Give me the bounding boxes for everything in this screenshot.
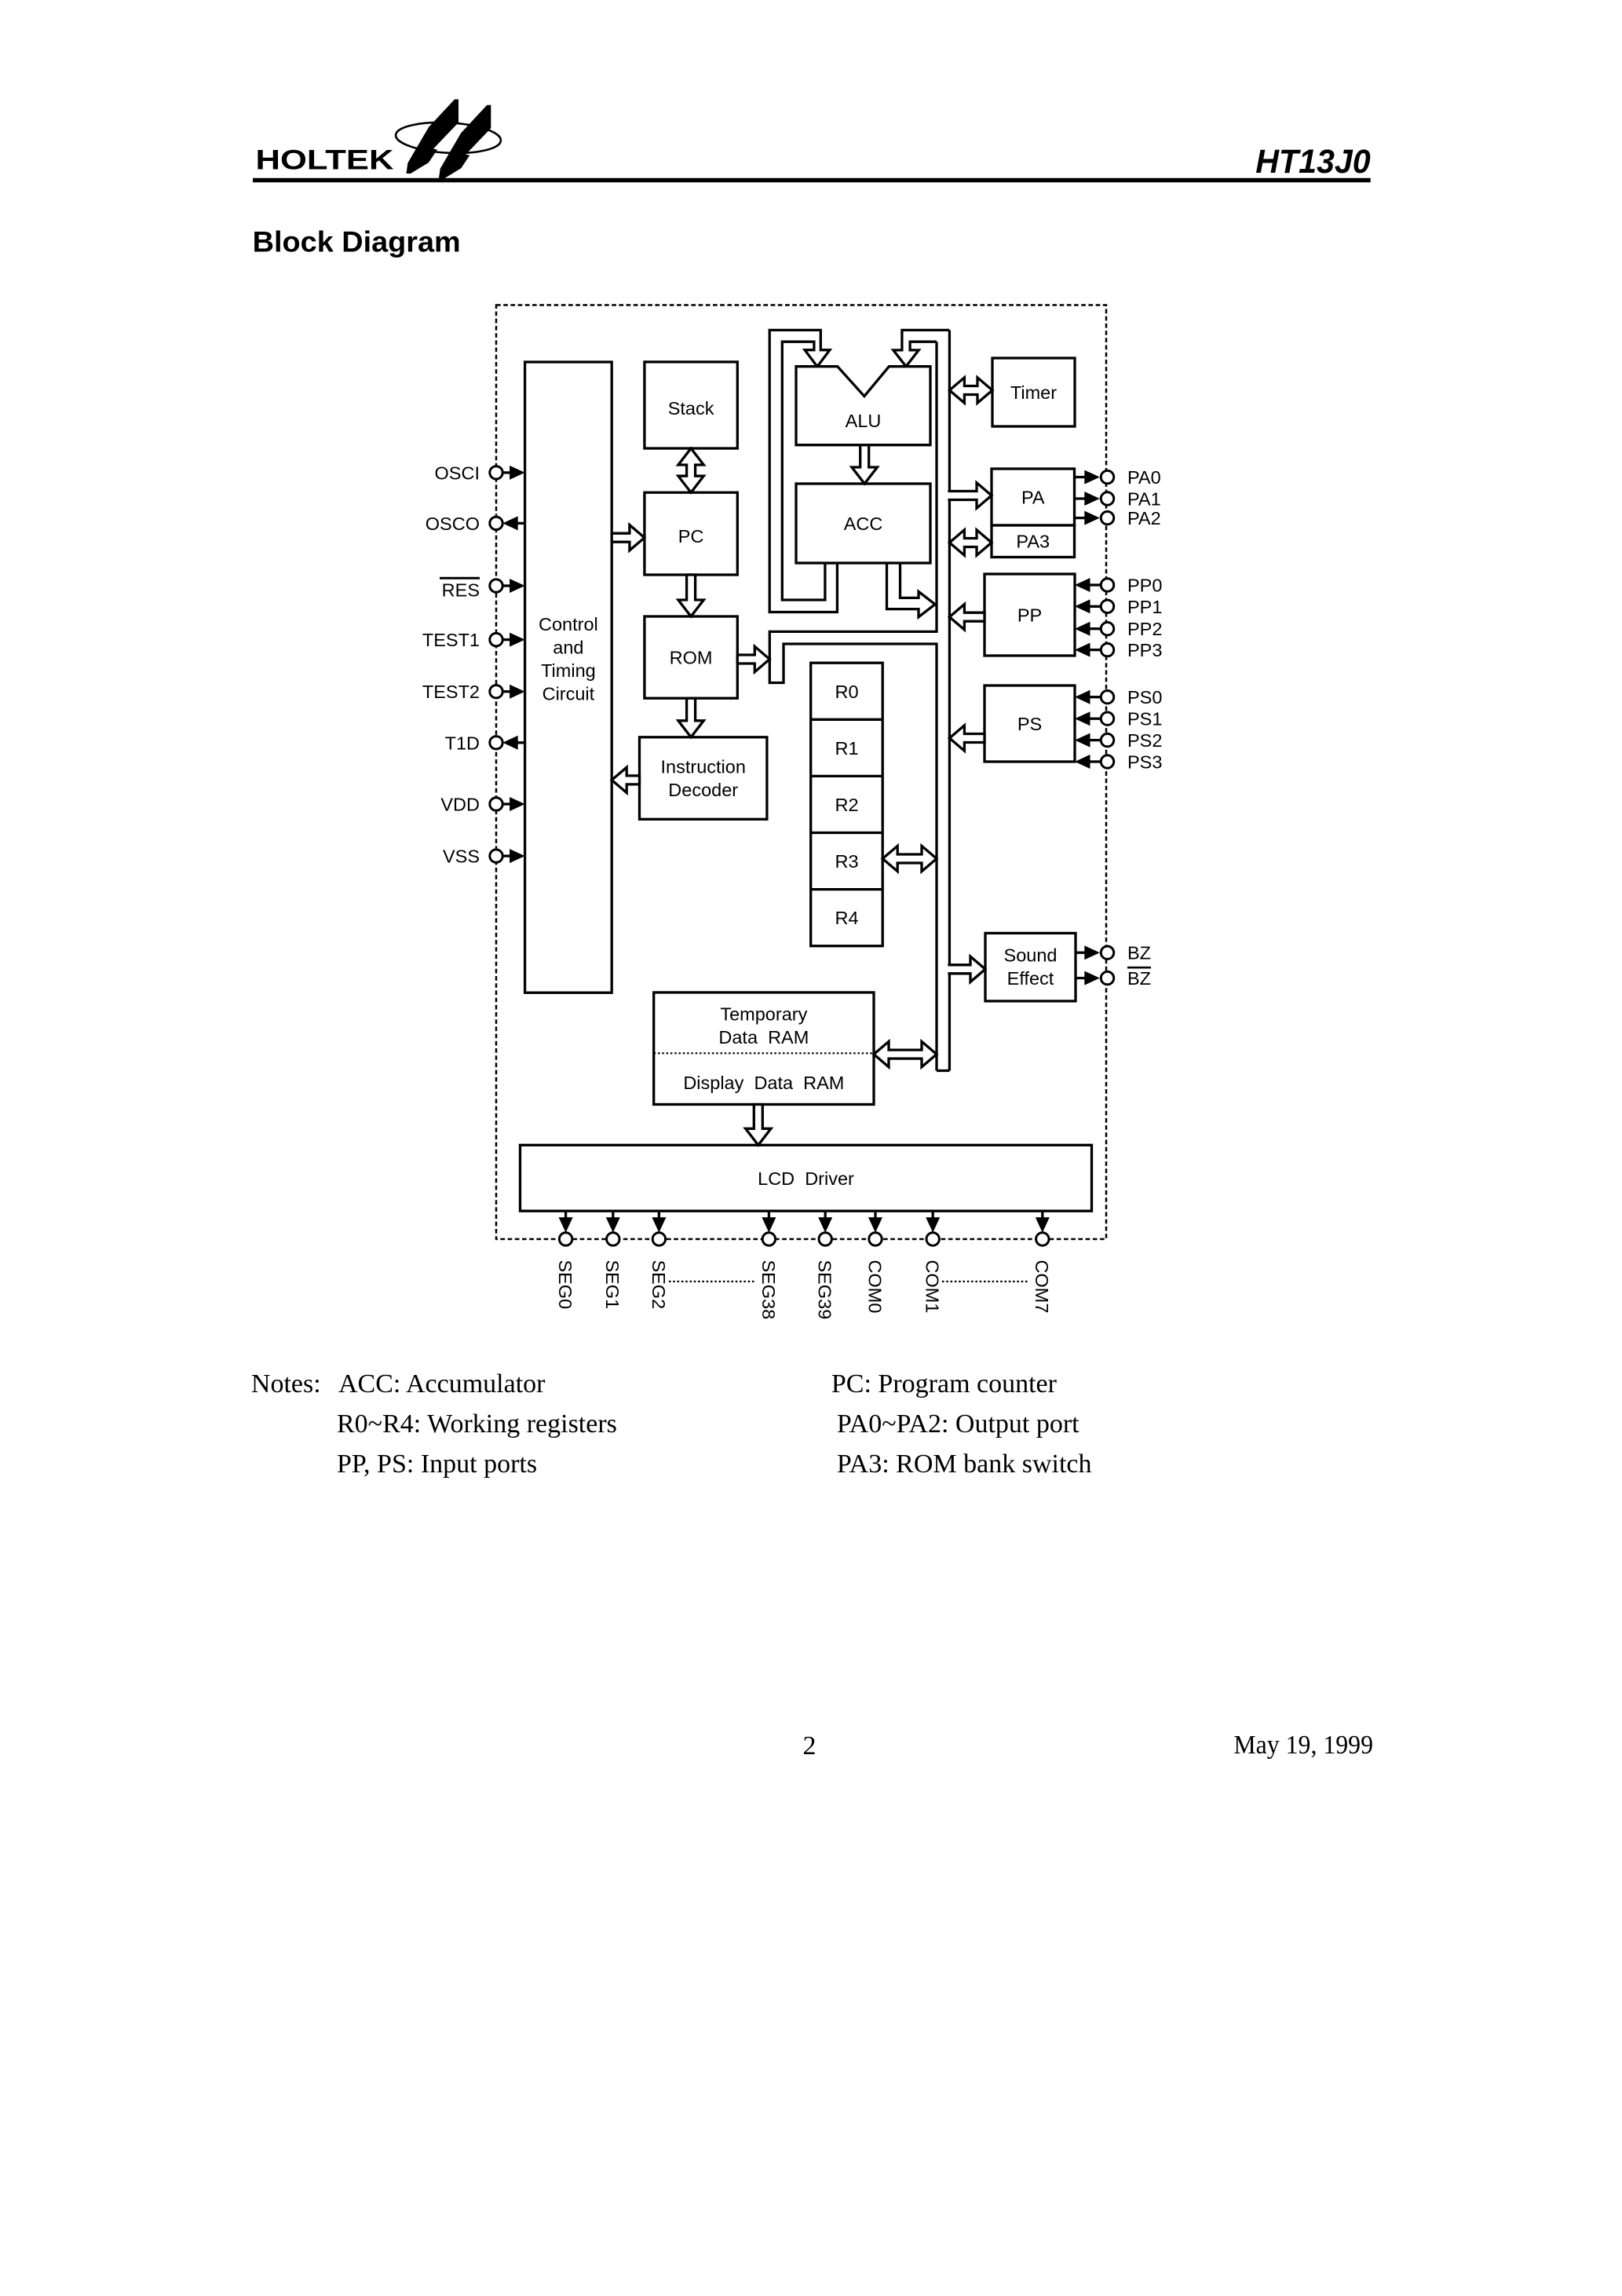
svg-text:PP1: PP1 (1127, 597, 1162, 617)
svg-text:Temporary: Temporary (720, 1004, 807, 1025)
svg-text:HOLTEK: HOLTEK (256, 145, 394, 176)
svg-text:PP3: PP3 (1127, 640, 1162, 660)
svg-text:TEST1: TEST1 (422, 630, 480, 650)
svg-text:Decoder: Decoder (668, 780, 738, 800)
svg-text:Sound: Sound (1004, 945, 1058, 966)
svg-text:PA: PA (1021, 488, 1045, 508)
svg-text:Timing: Timing (541, 660, 596, 681)
svg-text:ALU: ALU (846, 411, 882, 431)
svg-text:PP2: PP2 (1127, 619, 1162, 639)
svg-text:PA2: PA2 (1127, 508, 1161, 528)
svg-text:R0~R4: Working registers: R0~R4: Working registers (337, 1409, 617, 1439)
svg-text:Block Diagram: Block Diagram (253, 225, 461, 258)
svg-text:R3: R3 (835, 851, 858, 872)
svg-text:PA1: PA1 (1127, 489, 1161, 510)
svg-text:PP, PS: Input ports: PP, PS: Input ports (337, 1450, 537, 1479)
svg-text:PP0: PP0 (1127, 576, 1162, 596)
svg-text:Effect: Effect (1007, 968, 1054, 989)
svg-text:OSCO: OSCO (426, 514, 480, 534)
svg-text:PA3: ROM bank switch: PA3: ROM bank switch (837, 1450, 1092, 1479)
svg-text:BZ: BZ (1127, 968, 1151, 989)
svg-text:SEG38: SEG38 (758, 1260, 779, 1320)
svg-text:VDD: VDD (440, 795, 480, 815)
svg-text:OSCI: OSCI (435, 462, 480, 483)
svg-text:2: 2 (803, 1731, 816, 1760)
svg-text:COM0: COM0 (864, 1260, 885, 1314)
svg-text:ACC: Accumulator: ACC: Accumulator (338, 1369, 546, 1398)
svg-text:PA0: PA0 (1127, 467, 1161, 488)
svg-text:ROM: ROM (670, 648, 713, 668)
svg-text:VSS: VSS (443, 846, 480, 867)
svg-text:May 19, 1999: May 19, 1999 (1233, 1731, 1373, 1760)
svg-text:Notes:: Notes: (251, 1369, 321, 1398)
svg-text:BZ: BZ (1127, 943, 1151, 963)
svg-text:PA0~PA2: Output port: PA0~PA2: Output port (837, 1409, 1080, 1439)
svg-text:PA3: PA3 (1016, 532, 1050, 552)
svg-text:PC: PC (678, 526, 704, 547)
svg-text:Control: Control (539, 614, 598, 634)
svg-text:R1: R1 (835, 738, 858, 759)
svg-text:PS2: PS2 (1127, 730, 1162, 751)
svg-text:SEG39: SEG39 (815, 1260, 835, 1320)
svg-text:and: and (553, 638, 583, 658)
svg-text:Data RAM: Data RAM (718, 1027, 809, 1047)
svg-text:COM7: COM7 (1032, 1260, 1052, 1314)
svg-text:HT13J0: HT13J0 (1255, 144, 1371, 181)
svg-text:R0: R0 (835, 682, 858, 702)
svg-text:PP: PP (1017, 605, 1042, 626)
svg-text:Circuit: Circuit (542, 684, 595, 704)
svg-text:LCD Driver: LCD Driver (758, 1168, 854, 1189)
svg-text:PS3: PS3 (1127, 752, 1162, 773)
svg-text:RES: RES (442, 580, 480, 601)
svg-text:Timer: Timer (1010, 382, 1057, 403)
svg-text:PS0: PS0 (1127, 687, 1162, 707)
svg-text:PS1: PS1 (1127, 709, 1162, 729)
svg-text:ACC: ACC (844, 514, 883, 534)
svg-text:R4: R4 (835, 908, 858, 928)
svg-text:Stack: Stack (668, 398, 714, 419)
svg-text:SEG2: SEG2 (648, 1260, 669, 1310)
svg-text:SEG0: SEG0 (555, 1260, 575, 1310)
svg-text:Display Data RAM: Display Data RAM (683, 1073, 844, 1093)
svg-text:COM1: COM1 (922, 1260, 943, 1314)
svg-text:Instruction: Instruction (660, 757, 745, 777)
svg-text:PS: PS (1017, 714, 1042, 734)
svg-text:TEST2: TEST2 (422, 682, 480, 702)
svg-text:T1D: T1D (445, 733, 480, 753)
svg-text:R2: R2 (835, 795, 858, 815)
svg-text:PC: Program counter: PC: Program counter (831, 1369, 1058, 1398)
svg-text:SEG1: SEG1 (602, 1260, 623, 1310)
